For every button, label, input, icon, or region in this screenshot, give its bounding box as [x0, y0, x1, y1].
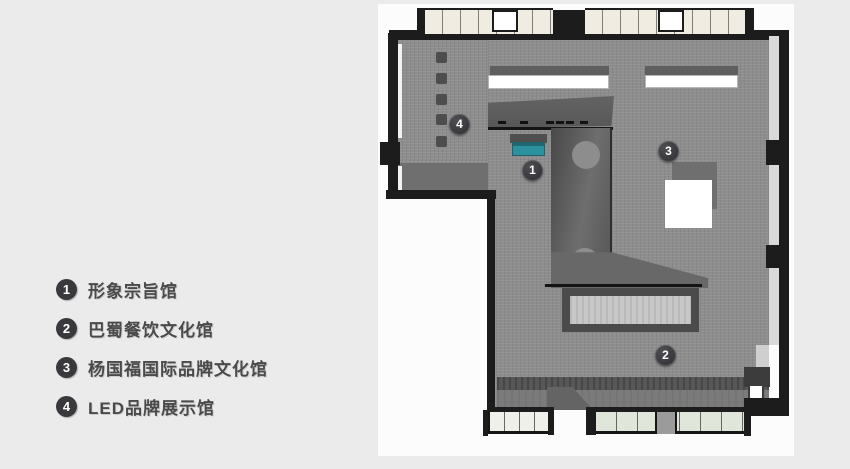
top-cabinet-highlight-right — [658, 10, 684, 32]
right-wall — [779, 30, 789, 416]
door-tick — [580, 121, 588, 124]
right-window-strip — [769, 36, 779, 345]
left-wall — [388, 33, 398, 195]
left-window-strip — [398, 44, 402, 138]
hall3-exhibit — [665, 180, 712, 228]
legend-item-3: 3 杨国福国际品牌文化馆 — [56, 357, 268, 378]
legend-label-1: 形象宗旨馆 — [88, 277, 178, 302]
legend-item-4: 4 LED品牌展示馆 — [56, 396, 268, 417]
led-pillar — [436, 114, 447, 125]
slide: 1 形象宗旨馆 2 巴蜀餐饮文化馆 3 杨国福国际品牌文化馆 4 LED品牌展示… — [0, 0, 850, 469]
cabinet-end-cap — [417, 8, 425, 36]
led-pillar — [436, 52, 447, 63]
wing-bottom-wall — [386, 190, 496, 199]
hall-left-wall — [487, 190, 495, 412]
display-table-left — [488, 75, 609, 89]
door-tick — [556, 121, 564, 124]
display-table-right — [645, 75, 738, 88]
plan-marker-4: 4 — [449, 114, 470, 135]
cabinet-end-cap — [744, 410, 751, 436]
bottom-cabinets-left — [488, 412, 548, 434]
left-wall-column — [380, 142, 400, 165]
plan-marker-2: 2 — [655, 345, 676, 366]
wing-shadow — [398, 163, 488, 192]
legend-badge-1-icon: 1 — [56, 279, 77, 300]
right-wall-column — [766, 140, 789, 165]
door-tick — [520, 121, 528, 124]
led-pillar — [436, 94, 447, 105]
left-window-strip — [398, 166, 402, 190]
central-display-table-inner — [570, 296, 691, 324]
door-tick — [546, 121, 554, 124]
legend-badge-3-icon: 3 — [56, 357, 77, 378]
door-tick — [566, 121, 574, 124]
bottom-dark-stripe — [497, 377, 769, 390]
legend-badge-2-icon: 2 — [56, 318, 77, 339]
legend-item-2: 2 巴蜀餐饮文化馆 — [56, 318, 268, 339]
legend-item-1: 1 形象宗旨馆 — [56, 279, 268, 300]
right-wall-column — [766, 245, 789, 268]
plan-marker-1: 1 — [522, 160, 543, 181]
legend-label-4: LED品牌展示馆 — [88, 394, 215, 419]
top-cabinet-highlight-left — [492, 10, 518, 32]
entrance-side-wall — [548, 407, 554, 435]
top-cabinets-left — [425, 8, 553, 34]
legend-label-3: 杨国福国际品牌文化馆 — [88, 355, 268, 380]
floor-main-hall — [488, 38, 769, 410]
legend-label-2: 巴蜀餐饮文化馆 — [88, 316, 214, 341]
table-top-edge — [545, 284, 702, 287]
hall1-teal-exhibit — [512, 142, 545, 156]
plan-marker-3: 3 — [658, 141, 679, 162]
door-tick — [498, 121, 506, 124]
cabinet-divider-wall — [553, 10, 585, 38]
led-pillar — [436, 136, 447, 147]
round-column-top — [572, 141, 600, 169]
legend: 1 形象宗旨馆 2 巴蜀餐饮文化馆 3 杨国福国际品牌文化馆 4 LED品牌展示… — [56, 279, 268, 417]
cabinet-end-cap — [745, 8, 754, 36]
entrance-side-wall — [586, 407, 596, 435]
led-pillar — [436, 73, 447, 84]
bottom-cabinet-door — [655, 412, 677, 434]
legend-badge-4-icon: 4 — [56, 396, 77, 417]
